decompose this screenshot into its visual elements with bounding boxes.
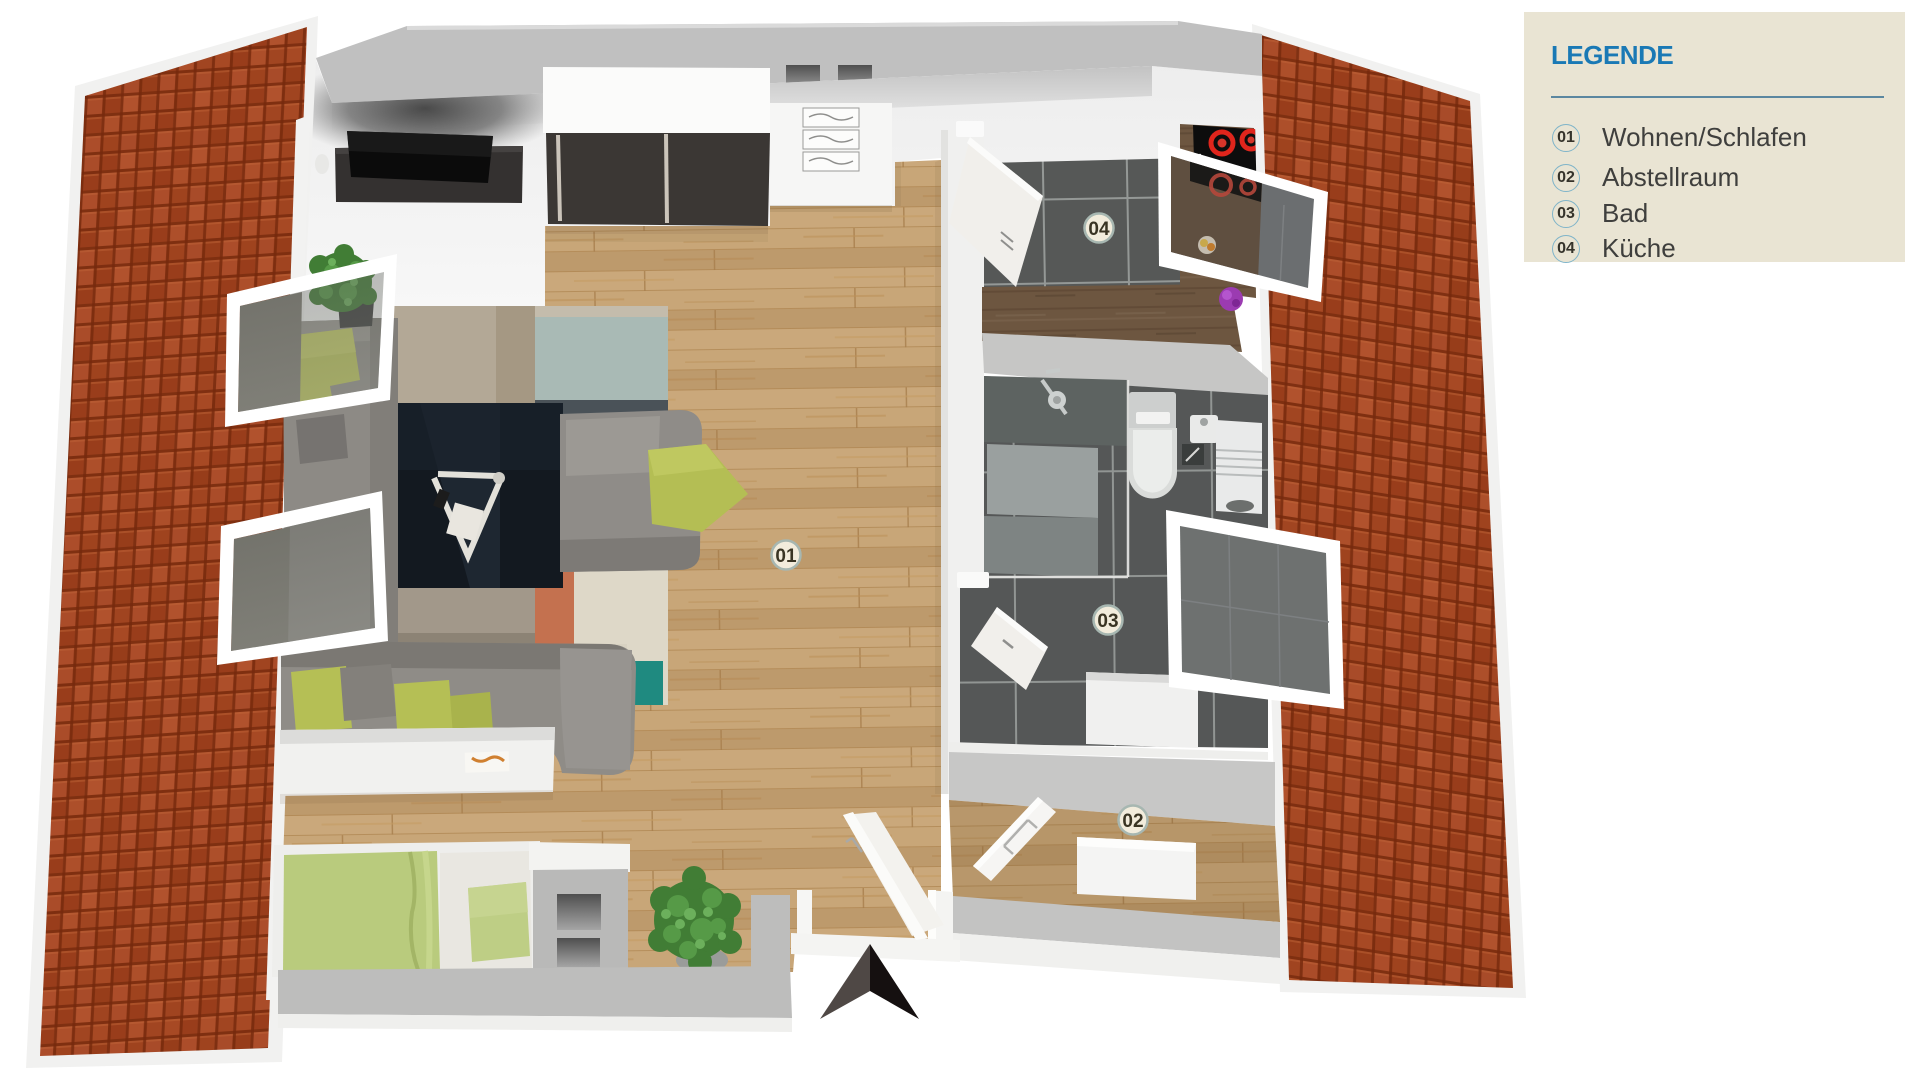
svg-text:03: 03: [1097, 611, 1118, 632]
svg-text:02: 02: [1122, 811, 1143, 832]
svg-text:04: 04: [1088, 219, 1110, 240]
svg-text:01: 01: [775, 546, 797, 567]
